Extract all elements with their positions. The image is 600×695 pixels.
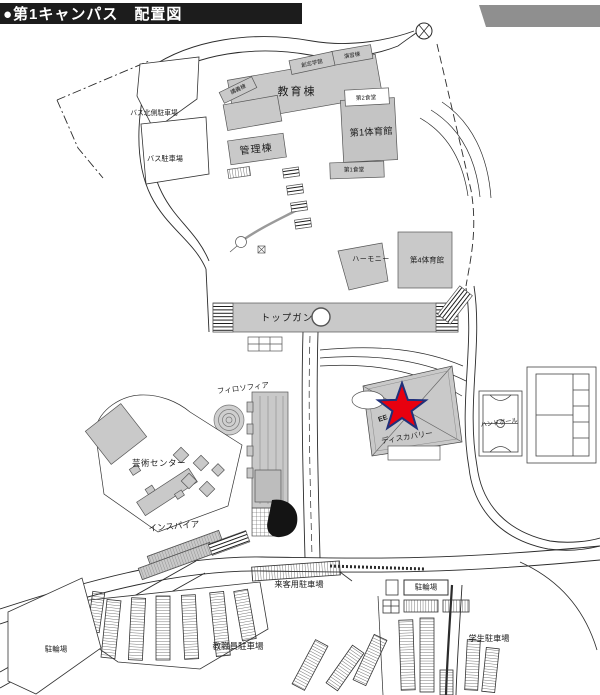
label-education-building: 教育棟 (278, 83, 317, 99)
label-harmony: ハーモニー (352, 254, 390, 264)
east-field (527, 367, 596, 463)
student-parking-zone (292, 618, 499, 695)
road-network (0, 31, 600, 695)
label-gym4: 第4体育館 (410, 255, 444, 266)
label-student-parking: 学生駐車場 (469, 632, 510, 644)
label-bus-parking: バス駐車場 (147, 154, 183, 164)
campus-map-page: ●第1キャンパス 配置図 教育棟 管理棟 第1体育館 第2食堂 第1食堂 演習棟… (0, 0, 600, 695)
bicycle-parking-left-zone (8, 578, 101, 694)
label-staff-parking: 教職員駐車場 (212, 640, 263, 652)
inspire-buildings (138, 530, 250, 579)
staff-parking-zone (80, 582, 268, 669)
bus-parking-zone (141, 117, 209, 184)
topgun-building (213, 303, 458, 332)
label-cafeteria2: 第2食堂 (355, 92, 376, 102)
top-right-gray-band (479, 5, 600, 27)
label-bicycle-parking-left: 駐輪場 (45, 644, 68, 655)
label-cafeteria1: 第1食堂 (344, 165, 365, 174)
label-bicycle-parking-right: 駐輪場 (415, 582, 438, 593)
label-bus-north-parking: バス北側駐車場 (130, 107, 178, 117)
label-art-center: 芸術センター (132, 457, 186, 469)
page-title: ●第1キャンパス 配置図 (0, 3, 182, 24)
page-header: ●第1キャンパス 配置図 (0, 3, 302, 24)
roundabout (416, 23, 432, 39)
label-gym1: 第1体育館 (349, 123, 393, 139)
harmony-building (338, 243, 388, 290)
label-visitor-parking: 来客用駐車場 (274, 578, 323, 590)
label-topgun: トップガン (261, 310, 314, 324)
campus-map-canvas (0, 0, 600, 695)
